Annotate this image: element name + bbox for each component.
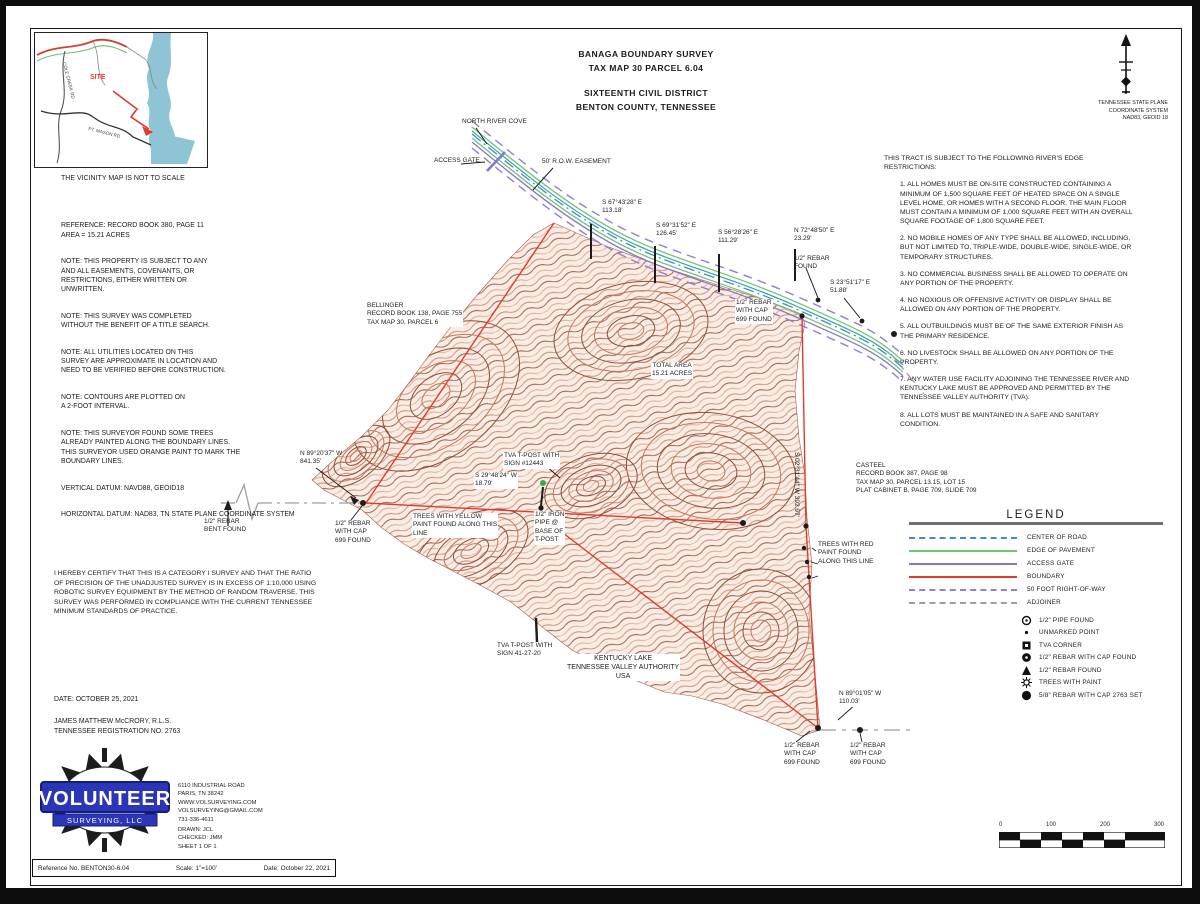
rebar-found-icon — [1021, 665, 1032, 676]
scale-tick: 300 — [1154, 822, 1164, 830]
vicinity-map-drawing — [35, 33, 204, 164]
coordinate-system-note: TENNESSEE STATE PLANE COORDINATE SYSTEM … — [1084, 100, 1168, 123]
monument-label: 1/2" REBAR WITH CAP 699 FOUND — [850, 742, 886, 767]
vicinity-site-label: SITE — [90, 74, 106, 81]
legend-rule — [909, 522, 1163, 525]
legend-label: 1/2" REBAR FOUND — [1039, 667, 1102, 674]
road-name-label: NORTH RIVER COVE — [462, 118, 527, 126]
bearing-label: S 23°51'17" E 51.88' — [830, 279, 870, 296]
trees-paint-label: TREES WITH YELLOW PAINT FOUND ALONG THIS… — [412, 513, 498, 538]
pipe-found-icon — [1021, 615, 1032, 626]
survey-sheet: SITE PT. MASON RD COLE CREEK RD THE VICI… — [0, 0, 1200, 904]
tree-with-paint-marker — [540, 480, 546, 486]
legend-label: CENTER OF ROAD — [1027, 534, 1087, 541]
legend-line-row: ACCESS GATE — [909, 557, 1163, 570]
vicinity-note: THE VICINITY MAP IS NOT TO SCALE — [61, 174, 185, 183]
bearing-label: S 29°48'24" W 18.79' — [474, 472, 518, 489]
bearing-label: S 69°31'52" E 126.45' — [656, 222, 696, 239]
boundary-line — [909, 576, 1017, 578]
surveyor-registration: TENNESSEE REGISTRATION NO. 2763 — [54, 728, 180, 737]
trees-paint-label: TREES WITH RED PAINT FOUND ALONG THIS LI… — [818, 541, 874, 566]
legend-line-row: CENTER OF ROAD — [909, 531, 1163, 544]
logo-name-text: VOLUNTEER — [39, 788, 171, 810]
edge-of-pavement-line — [909, 550, 1017, 552]
legend-symbol-row: 1/2" REBAR FOUND — [909, 664, 1163, 677]
tva-tpost-label: TVA T-POST WITH SIGN 41-27-20 — [496, 642, 553, 659]
reference-note: REFERENCE: RECORD BOOK 380, PAGE 11 AREA… — [61, 221, 361, 240]
utilities-note: NOTE: ALL UTILITIES LOCATED ON THIS SURV… — [61, 348, 361, 376]
scale-tick: 100 — [1046, 822, 1056, 830]
kentucky-lake-label: KENTUCKY LAKE TENNESSEE VALLEY AUTHORITY… — [566, 654, 680, 681]
legend-label: 50 FOOT RIGHT-OF-WAY — [1027, 586, 1106, 593]
unmarked-point-icon — [1021, 627, 1032, 638]
monument-label: 1/2" REBAR WITH CAP 699 FOUND — [334, 520, 372, 545]
scale-tick: 200 — [1100, 822, 1110, 830]
legend-line-row: EDGE OF PAVEMENT — [909, 544, 1163, 557]
contour-interval-note: NOTE: CONTOURS ARE PLOTTED ON A 2-FOOT I… — [61, 393, 361, 412]
legend-symbol-row: TVA CORNER — [909, 639, 1163, 652]
surveyor-name: JAMES MATTHEW McCRORY, R.L.S. — [54, 718, 171, 727]
volunteer-surveying-logo: VOLUNTEER SURVEYING, LLC — [39, 748, 171, 852]
legend: LEGEND CENTER OF ROAD EDGE OF PAVEMENT A… — [909, 509, 1163, 702]
monument-label: 1/2" REBAR WITH CAP 699 FOUND — [735, 299, 773, 324]
pavement-line — [37, 46, 127, 61]
access-gate-label: ACCESS GATE — [434, 157, 480, 165]
graphic-scale-bar — [999, 832, 1165, 848]
site-arrow — [113, 91, 149, 129]
rebar-with-cap-set-icon — [1021, 690, 1032, 701]
monument-label: 1/2" REBAR WITH CAP 699 FOUND — [784, 742, 820, 767]
legend-symbol-row: TREES WITH PAINT — [909, 677, 1163, 690]
legend-label: EDGE OF PAVEMENT — [1027, 547, 1095, 554]
access-gate-line — [909, 563, 1017, 565]
legend-label: TREES WITH PAINT — [1039, 679, 1102, 686]
bearing-label: N 72°48'50" E 23.29' — [794, 227, 834, 244]
rebar-with-cap-found-icon — [1021, 652, 1032, 663]
firm-address: 6110 INDUSTRIAL ROAD PARIS, TN 38242 WWW… — [178, 782, 263, 824]
bearing-label: N 89°20'37" W 841.35' — [300, 450, 342, 467]
footer-title-bar: Reference No. BENTON30-6.04 Scale: 1"=10… — [32, 859, 336, 877]
drawing-credits: DRAWN: JCL CHECKED: JMM SHEET 1 OF 1 — [178, 826, 222, 851]
legend-label: 1/2" REBAR WITH CAP FOUND — [1039, 654, 1136, 661]
title-search-note: NOTE: THIS SURVEY WAS COMPLETED WITHOUT … — [61, 312, 361, 331]
legend-label: BOUNDARY — [1027, 573, 1065, 580]
legend-line-row: 50 FOOT RIGHT-OF-WAY — [909, 583, 1163, 596]
tree-with-paint-icon — [1021, 677, 1032, 688]
bearing-label: S 02°31'44" W 392.97' — [792, 452, 800, 517]
legend-label: 5/8" REBAR WITH CAP 2763 SET — [1039, 692, 1143, 699]
certification-date: DATE: OCTOBER 25, 2021 — [54, 696, 138, 705]
total-area-label: TOTAL AREA 15.21 ACRES — [651, 362, 693, 379]
drawing-scale: Scale: 1"=100' — [176, 865, 217, 872]
legend-line-row: ADJOINER — [909, 596, 1163, 609]
monument-label: 1/2" IRON PIPE @ BASE OF T-POST — [534, 511, 565, 545]
vicinity-map — [34, 32, 208, 168]
monument-label: 1/2" REBAR BENT FOUND — [204, 518, 246, 535]
legend-symbol-row: 5/8" REBAR WITH CAP 2763 SET — [909, 689, 1163, 702]
scale-tick: 0 — [999, 822, 1002, 830]
legend-symbol-row: UNMARKED POINT — [909, 627, 1163, 640]
coord-note-line: TENNESSEE STATE PLANE — [1084, 100, 1168, 108]
adjoiner-line — [909, 602, 1017, 604]
easements-note: NOTE: THIS PROPERTY IS SUBJECT TO ANY AN… — [61, 257, 361, 294]
row-easement-label: 50' R.O.W. EASEMENT — [542, 158, 611, 166]
monument-label: 1/2" REBAR FOUND — [794, 255, 830, 272]
center-of-road-line — [909, 537, 1017, 539]
drawing-date: Date: October 22, 2021 — [264, 865, 330, 872]
vertical-datum-note: VERTICAL DATUM: NAVD88, GEOID18 — [61, 484, 361, 493]
legend-label: ADJOINER — [1027, 599, 1061, 606]
legend-label: 1/2" PIPE FOUND — [1039, 617, 1094, 624]
tva-corner-icon — [1021, 640, 1032, 651]
coord-note-line: NAD83, GEOID 18 — [1084, 115, 1168, 123]
logo-sub-text: SURVEYING, LLC — [67, 816, 143, 825]
bearing-label: S 67°43'28" E 113.18' — [602, 199, 642, 216]
bearing-label: S 56°28'26" E 111.29' — [718, 229, 758, 246]
tva-tpost-label: TVA T-POST WITH SIGN #12443 — [503, 452, 560, 469]
legend-line-row: BOUNDARY — [909, 570, 1163, 583]
legend-title: LEGEND — [909, 509, 1163, 521]
survey-notes: REFERENCE: RECORD BOOK 380, PAGE 11 AREA… — [61, 212, 361, 537]
legend-label: TVA CORNER — [1039, 642, 1082, 649]
north-arrow-icon — [1112, 34, 1140, 98]
adjoiner-label: CASTEEL RECORD BOOK 387, PAGE 98 TAX MAP… — [856, 462, 977, 496]
legend-label: UNMARKED POINT — [1039, 629, 1100, 636]
adjoiner-label: BELLINGER RECORD BOOK 138, PAGE 755 TAX … — [366, 302, 463, 327]
legend-symbol-row: 1/2" REBAR WITH CAP FOUND — [909, 652, 1163, 665]
legend-label: ACCESS GATE — [1027, 560, 1074, 567]
coord-note-line: COORDINATE SYSTEM — [1084, 108, 1168, 116]
reference-number: Reference No. BENTON30-6.04 — [38, 865, 129, 872]
bearing-label: N 89°01'05" W 110.03' — [838, 690, 882, 707]
legend-symbol-row: 1/2" PIPE FOUND — [909, 614, 1163, 627]
right-of-way-line — [909, 589, 1017, 591]
